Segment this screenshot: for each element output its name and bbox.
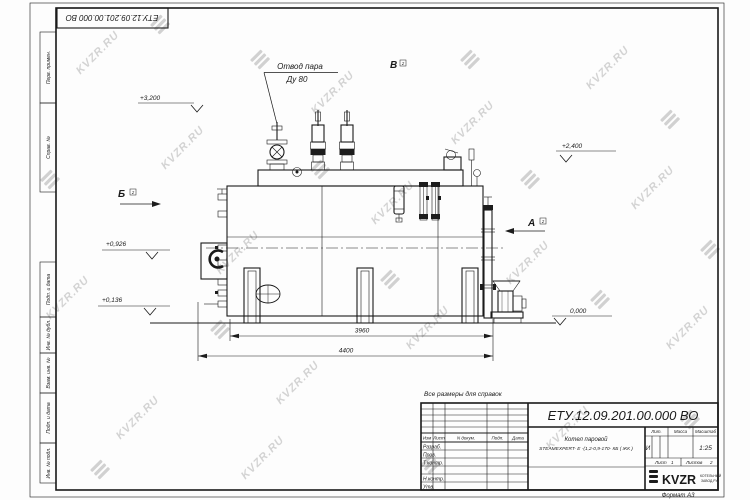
svg-text:KVZR.RU: KVZR.RU	[449, 99, 497, 147]
svg-text:Т.контр.: Т.контр.	[423, 461, 443, 467]
svg-text:Разраб.: Разраб.	[423, 445, 441, 451]
svg-text:3960: 3960	[355, 328, 370, 335]
svg-text:KVZR.RU: KVZR.RU	[214, 229, 262, 277]
svg-text:Б: Б	[118, 189, 125, 200]
svg-text:KVZR.RU: KVZR.RU	[159, 124, 207, 172]
svg-text:KVZR.RU: KVZR.RU	[239, 434, 287, 482]
steam-outlet-valve	[267, 122, 287, 170]
svg-text:+3,200: +3,200	[140, 95, 160, 102]
boiler-view	[150, 110, 556, 323]
svg-text:Масса: Масса	[674, 429, 688, 434]
svg-text:Н.контр.: Н.контр.	[423, 477, 444, 483]
elevation-mark: +0,136	[98, 297, 170, 315]
kvzr-logo-text: KVZR	[662, 473, 696, 487]
scale-value: 1:25	[699, 445, 712, 452]
margin-stamp-label: Взам. инв. №	[46, 357, 52, 389]
feed-valve-and-gauges	[444, 149, 481, 186]
logo-caption: ЗАВОД.РУ	[701, 479, 718, 483]
svg-text:Изм: Изм	[423, 436, 431, 441]
elevation-mark: +3,200	[138, 95, 203, 112]
svg-text:Лист: Лист	[432, 436, 445, 441]
svg-text:Дата: Дата	[511, 436, 524, 441]
svg-text:+2,400: +2,400	[562, 143, 582, 150]
svg-text:4400: 4400	[339, 348, 354, 355]
svg-text:Пров.: Пров.	[423, 453, 436, 459]
title-designation: ЕТУ.12.09.201.00.000 ВО	[548, 408, 699, 423]
safety-valve	[311, 110, 326, 170]
margin-stamp-label: Подп. и дата	[46, 402, 52, 434]
view-mark-b: Б 2	[118, 189, 161, 207]
elevation-mark: 0,000	[552, 308, 612, 325]
format-label: Формат А3	[662, 493, 695, 499]
view-mark-v: В 2	[390, 60, 406, 71]
svg-text:Ду 80: Ду 80	[286, 75, 308, 84]
svg-text:Отвод пара: Отвод пара	[277, 62, 323, 71]
margin-stamp-label: Инв. № дубл.	[46, 320, 52, 351]
title-block: Все размеры для справок Изм Лист N докум…	[421, 390, 722, 491]
logo-caption: КОТЕЛЬНЫЙ	[700, 474, 722, 478]
svg-text:Листов: Листов	[685, 460, 703, 465]
rear-riser-pipe	[480, 197, 496, 318]
svg-text:1: 1	[671, 460, 674, 465]
reference-note: Все размеры для справок	[424, 390, 503, 398]
svg-text:2: 2	[131, 190, 135, 195]
svg-text:2: 2	[709, 460, 713, 465]
svg-text:Лит.: Лит.	[650, 429, 662, 434]
boiler-drawing-svg: KVZR.RU KVZR.RU KVZR.RU KVZR.RU KVZR.RU …	[0, 0, 750, 500]
top-stamp-designation: ЕТУ.12.09.201.00.000 ВО	[66, 13, 159, 22]
svg-text:KVZR.RU: KVZR.RU	[74, 29, 122, 77]
kvzr-logo: KVZR КОТЕЛЬНЫЙ ЗАВОД.РУ	[649, 470, 722, 487]
product-model: STEAMEXPERT- E -(1,2-0,9-170- КБ ( ЖК )	[539, 446, 633, 452]
svg-text:KVZR.RU: KVZR.RU	[629, 164, 677, 212]
margin-stamp-label: Подп. и дата	[46, 274, 52, 306]
svg-text:В: В	[390, 60, 397, 71]
product-name: Котел паровой	[564, 436, 608, 443]
elevation-mark: +2,400	[556, 143, 616, 162]
margin-stamp-label: Справ. №	[46, 136, 52, 159]
svg-text:+0,136: +0,136	[102, 297, 122, 304]
svg-text:Подп.: Подп.	[492, 436, 504, 441]
svg-text:KVZR.RU: KVZR.RU	[504, 239, 552, 287]
svg-text:KVZR.RU: KVZR.RU	[309, 69, 357, 117]
svg-text:KVZR.RU: KVZR.RU	[274, 359, 322, 407]
drawing-sheet: KVZR.RU KVZR.RU KVZR.RU KVZR.RU KVZR.RU …	[0, 0, 750, 500]
svg-text:Лист: Лист	[654, 460, 667, 465]
margin-stamp-label: Перв. примен.	[46, 51, 52, 84]
svg-text:KVZR.RU: KVZR.RU	[404, 304, 452, 352]
svg-text:Утв.: Утв.	[423, 485, 434, 491]
svg-text:0,000: 0,000	[570, 308, 587, 315]
svg-text:KVZR.RU: KVZR.RU	[114, 394, 162, 442]
svg-text:Масштаб: Масштаб	[695, 429, 716, 434]
safety-valve	[340, 110, 355, 170]
svg-text:KVZR.RU: KVZR.RU	[584, 44, 632, 92]
view-mark-a: А 2	[505, 218, 546, 234]
margin-stamps: Перв. примен. Справ. № Подп. и дата Инв.…	[40, 32, 56, 483]
svg-text:KVZR.RU: KVZR.RU	[664, 304, 712, 352]
svg-text:N докум.: N докум.	[457, 436, 475, 441]
svg-text:2: 2	[401, 61, 405, 66]
feed-pump	[491, 281, 526, 323]
svg-text:2: 2	[541, 219, 545, 224]
dimension-3960: 3960	[230, 328, 493, 339]
elevation-mark: +0,926	[102, 241, 170, 259]
svg-text:+0,926: +0,926	[106, 241, 126, 248]
dimension-4400: 4400	[198, 348, 493, 359]
boiler-shell	[227, 186, 483, 316]
margin-stamp-label: Инв. № подл.	[46, 447, 52, 478]
lit-value: И	[646, 446, 651, 452]
svg-text:А: А	[527, 218, 535, 229]
